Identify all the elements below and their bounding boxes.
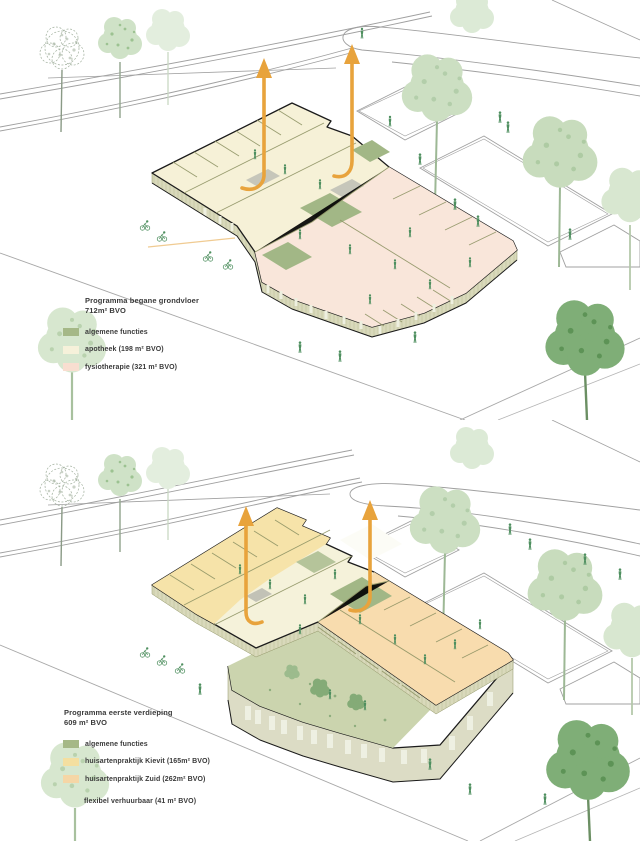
legend-label-algemene: algemene functies (85, 329, 148, 336)
legend-swatch-algemene (63, 740, 79, 748)
legend-item-zuid: huisartenpraktijk Zuid (262m² BVO) (63, 775, 210, 783)
legend-label-apotheek: apotheek (198 m² BVO) (85, 346, 164, 353)
exit-arrow-left-head (238, 506, 254, 526)
legend-swatch-kievit (63, 758, 79, 766)
flexible-rentable-note: flexibel verhuurbaar (41 m² BVO) (84, 798, 210, 805)
legend-item-algemene: algemene functies (63, 740, 210, 748)
exit-arrow-right-head (362, 500, 378, 520)
first-floor-legend: Programma eerste verdieping 609 m² BVO a… (63, 708, 210, 805)
architectural-program-diagram-page: { "document": { "kind": "architectural a… (0, 0, 640, 841)
legend-item-kievit: huisartenpraktijk Kievit (165m² BVO) (63, 758, 210, 766)
building-ground-floor (152, 103, 517, 337)
ground-floor-legend: Programma begane grondvloer 712m² BVO al… (63, 296, 199, 381)
legend-swatch-apotheek (63, 346, 79, 354)
ground-floor-legend-area: 712m² BVO (85, 306, 199, 316)
legend-label-fysiotherapie: fysiotherapie (321 m² BVO) (85, 364, 177, 371)
legend-item-algemene: algemene functies (63, 328, 199, 336)
legend-swatch-zuid (63, 775, 79, 783)
first-floor-legend-title: Programma eerste verdieping (64, 708, 210, 718)
legend-item-apotheek: apotheek (198 m² BVO) (63, 346, 199, 354)
legend-item-fysiotherapie: fysiotherapie (321 m² BVO) (63, 363, 199, 371)
legend-label-zuid: huisartenpraktijk Zuid (262m² BVO) (85, 776, 205, 783)
legend-label-kievit: huisartenpraktijk Kievit (165m² BVO) (85, 758, 210, 765)
legend-swatch-algemene (63, 328, 79, 336)
legend-swatch-fysiotherapie (63, 363, 79, 371)
road-network (0, 0, 640, 131)
ground-floor-legend-title: Programma begane grondvloer (85, 296, 199, 306)
legend-label-algemene: algemene functies (85, 741, 148, 748)
exit-arrow-left-head (256, 58, 272, 78)
first-floor-legend-area: 609 m² BVO (64, 718, 210, 728)
